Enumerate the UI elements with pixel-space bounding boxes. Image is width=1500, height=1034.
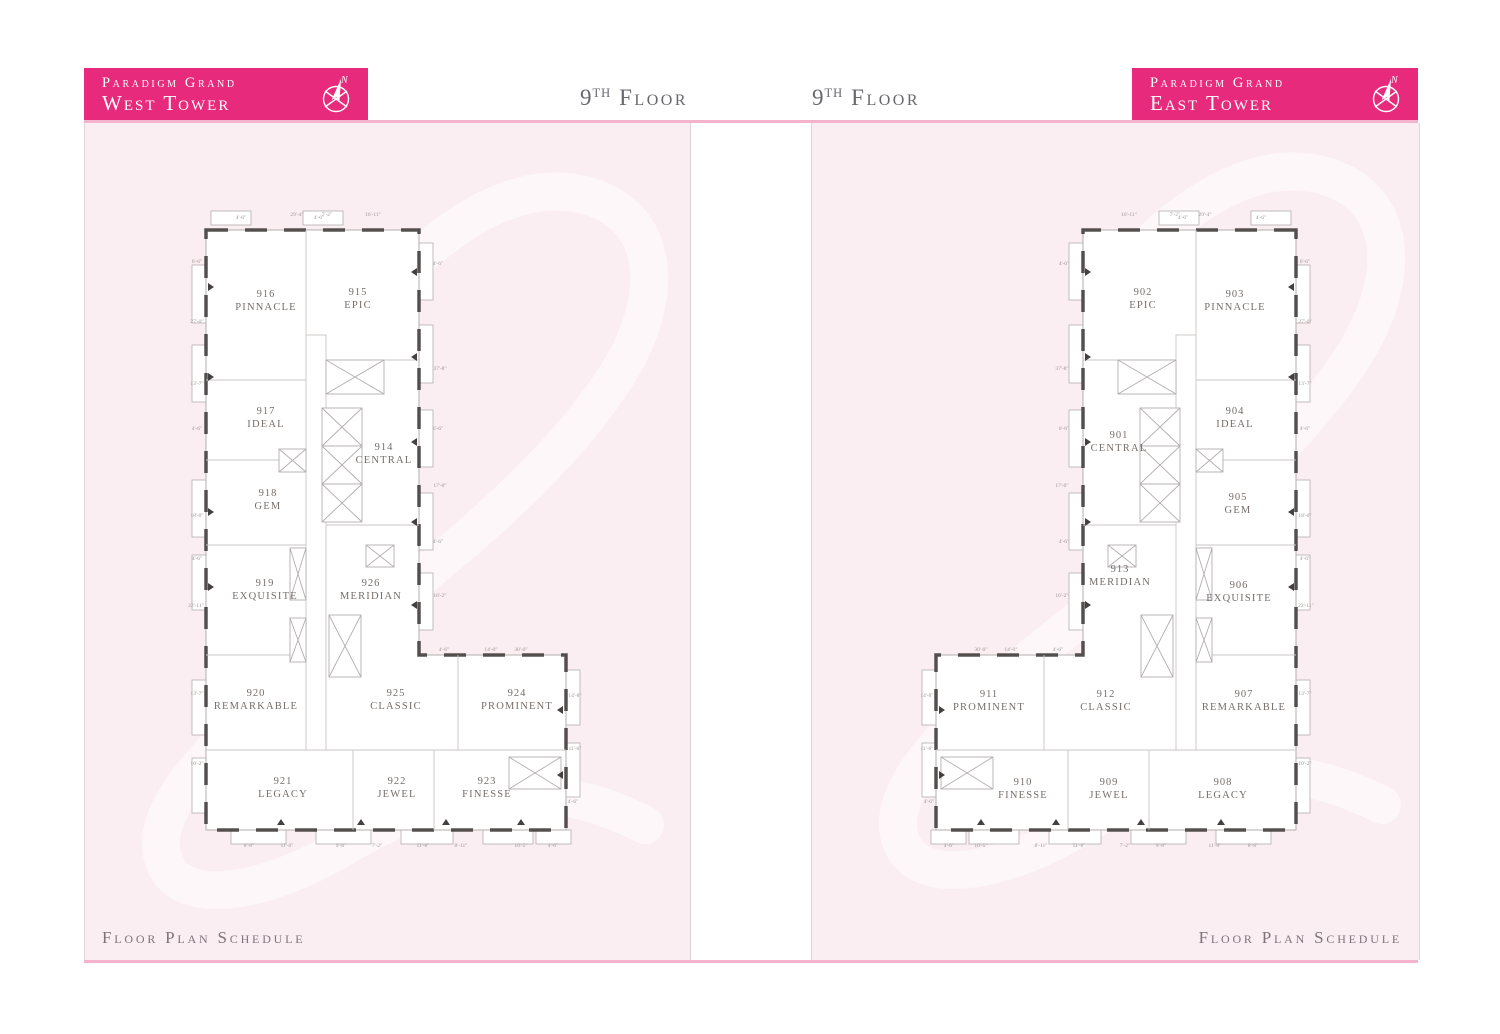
balcony	[192, 480, 206, 537]
balcony	[419, 410, 433, 467]
schedule-label-west: Floor Plan Schedule	[102, 928, 305, 948]
room-number: 924	[508, 688, 527, 699]
elevator-shaft	[941, 757, 993, 789]
balcony	[419, 493, 433, 550]
balcony	[1131, 830, 1186, 844]
unit-outline	[206, 230, 566, 830]
dimension-label: 8'-8"	[1248, 843, 1259, 849]
corridor	[306, 335, 326, 750]
room-name: GEM	[255, 501, 282, 512]
dimension-label: 9'-8"	[1156, 843, 1167, 849]
elevator-shaft	[1196, 618, 1212, 662]
floor-number: 9	[580, 85, 593, 110]
dimension-label: 4'-6"	[924, 799, 935, 805]
room-number: 907	[1235, 689, 1254, 700]
room-number: 914	[375, 442, 394, 453]
room-name: CLASSIC	[1080, 702, 1132, 713]
dimension-label: 10'-2"	[190, 761, 203, 767]
dimension-label: 13'-7"	[1298, 691, 1311, 697]
room-number: 905	[1229, 492, 1248, 503]
balcony	[483, 830, 533, 844]
compass-north-label: N	[340, 75, 349, 86]
room-name: CLASSIC	[370, 701, 422, 712]
elevator-shaft	[279, 449, 306, 472]
dimension-label: 4'-6"	[568, 799, 579, 805]
dimension-label: 9'-8"	[336, 843, 347, 849]
room-number: 906	[1230, 580, 1249, 591]
room-name: REMARKABLE	[1202, 702, 1286, 713]
dimension-label: 13'-7"	[190, 691, 203, 697]
dimension-label: 27'-0"	[190, 319, 203, 325]
room-name: PROMINENT	[481, 701, 553, 712]
balcony	[1216, 830, 1271, 844]
balcony	[536, 830, 571, 844]
dimension-label: 8'-11"	[454, 843, 467, 849]
room-number: 919	[256, 578, 275, 589]
room-name: FINESSE	[998, 790, 1048, 801]
room-number: 904	[1226, 406, 1245, 417]
room-name: PROMINENT	[953, 702, 1025, 713]
dimension-label: 4'-6"	[1059, 261, 1070, 267]
dimension-label: 4'-6"	[1300, 556, 1311, 562]
balcony	[192, 555, 206, 610]
dimension-label: 4'-6"	[1053, 647, 1064, 653]
room-name: EPIC	[344, 300, 372, 311]
west-tower-banner: Paradigm Grand West Tower N	[84, 68, 368, 120]
compass-icon: N	[316, 73, 356, 117]
dimension-label: 37'-8"	[1055, 366, 1068, 372]
dimension-label: 18'-0"	[1298, 513, 1311, 519]
dimension-label: 4'-6"	[236, 215, 247, 221]
dimension-label: 4'-6"	[439, 647, 450, 653]
room-name: EXQUISITE	[232, 591, 298, 602]
dimension-label: 29'-4"	[290, 212, 303, 218]
room-number: 925	[387, 688, 406, 699]
balcony	[1296, 265, 1310, 323]
dimension-label: 17'-0"	[1055, 483, 1068, 489]
balcony	[1049, 830, 1101, 844]
dimension-label: 4'-6"	[192, 556, 203, 562]
compass-icon: N	[1366, 73, 1406, 117]
elevator-shaft	[1140, 484, 1180, 522]
dimension-label: 14'-0"	[1004, 647, 1017, 653]
balcony	[1296, 345, 1310, 402]
dimension-label: 6'-6"	[1300, 259, 1311, 265]
balcony	[931, 830, 966, 844]
dimension-label: 6'-6"	[433, 426, 444, 432]
balcony	[192, 680, 206, 735]
room-number: 910	[1014, 777, 1033, 788]
floor-ordinal: th	[825, 86, 844, 100]
elevator-shaft	[1118, 360, 1176, 394]
dimension-label: 4'-6"	[1300, 426, 1311, 432]
dimension-label: 4'-6"	[192, 426, 203, 432]
dimension-label: 6'-6"	[192, 259, 203, 265]
elevator-shaft	[322, 484, 362, 522]
dimension-label: 22'-11"	[1298, 603, 1314, 609]
balcony	[192, 345, 206, 402]
dimension-label: 4'-6"	[433, 539, 444, 545]
room-name: JEWEL	[1089, 790, 1128, 801]
floor-word: Floor	[619, 85, 688, 110]
room-name: PINNACLE	[1204, 302, 1266, 313]
west-floor-plan: 4'-6"29'-4"7'-2"16'-11"4'-6"6'-6"27'-0"1…	[166, 205, 606, 855]
room-name: CENTRAL	[356, 455, 413, 466]
room-name: LEGACY	[1198, 790, 1248, 801]
floor-ordinal: th	[592, 86, 611, 100]
dimension-label: 22'-11"	[188, 603, 204, 609]
dimension-label: 4'-6"	[1256, 215, 1267, 221]
dimension-label: 17'-0"	[433, 483, 446, 489]
dimension-label: 10'-5"	[514, 843, 527, 849]
dimension-label: 4'-6"	[433, 261, 444, 267]
dimension-label: 14'-8"	[920, 693, 933, 699]
dimension-label: 16'-2"	[1055, 593, 1068, 599]
room-name: IDEAL	[1216, 419, 1254, 430]
dimension-label: 7'-2"	[1120, 843, 1131, 849]
brochure-page: 4'-6"29'-4"7'-2"16'-11"4'-6"6'-6"27'-0"1…	[0, 0, 1500, 1034]
unit-outline	[936, 230, 1296, 830]
dimension-label: 37'-8"	[433, 366, 446, 372]
balcony	[192, 265, 206, 323]
dimension-label: 11'-8"	[1072, 843, 1085, 849]
elevator-shaft	[1140, 408, 1180, 446]
dimension-label: 30'-0"	[974, 647, 987, 653]
dimension-label: 7'-2"	[372, 843, 383, 849]
room-name: LEGACY	[258, 789, 308, 800]
elevator-shaft	[322, 408, 362, 446]
balcony	[419, 243, 433, 300]
floor-title-west: 9thFloor	[440, 85, 688, 111]
elevator-shaft	[1141, 615, 1173, 677]
elevator-shaft	[509, 757, 561, 789]
dimension-label: 4'-6"	[548, 843, 559, 849]
dimension-label: 11'-0"	[280, 843, 293, 849]
dimension-label: 4'-6"	[944, 843, 955, 849]
dimension-label: 16'-11"	[1121, 212, 1137, 218]
room-name: JEWEL	[377, 789, 416, 800]
room-number: 915	[349, 287, 368, 298]
dimension-label: 10'-2"	[1298, 761, 1311, 767]
room-name: EPIC	[1129, 300, 1157, 311]
room-name: FINESSE	[462, 789, 512, 800]
balcony	[1069, 243, 1083, 300]
east-tower-banner: Paradigm Grand East Tower N	[1132, 68, 1418, 120]
elevator-shaft	[1196, 449, 1223, 472]
room-number: 912	[1097, 689, 1116, 700]
balcony	[1296, 555, 1310, 610]
east-floor-plan: 4'-6"29'-4"7'-2"16'-11"4'-6"6'-6"27'-0"1…	[896, 205, 1336, 855]
divider-line-bottom	[84, 960, 1418, 963]
room-number: 909	[1100, 777, 1119, 788]
dimension-label: 14'-8"	[568, 693, 581, 699]
balcony	[1069, 410, 1083, 467]
balcony	[1296, 680, 1310, 735]
room-number: 901	[1110, 430, 1129, 441]
tower-title: West Tower	[102, 91, 230, 116]
room-name: MERIDIAN	[1089, 577, 1151, 588]
floor-title-east: 9thFloor	[812, 85, 1060, 111]
dimension-label: 30'-0"	[514, 647, 527, 653]
balcony	[969, 830, 1019, 844]
room-number: 913	[1111, 564, 1130, 575]
room-number: 908	[1214, 777, 1233, 788]
dimension-label: 8'-11"	[1034, 843, 1047, 849]
dimension-label: 27'-0"	[1298, 319, 1311, 325]
room-name: PINNACLE	[235, 302, 297, 313]
room-number: 902	[1134, 287, 1153, 298]
room-number: 920	[247, 688, 266, 699]
brand-title: Paradigm Grand	[102, 75, 237, 92]
room-number: 921	[274, 776, 293, 787]
dimension-label: 10'-5"	[974, 843, 987, 849]
floor-number: 9	[812, 85, 825, 110]
dimension-label: 11'-0"	[1208, 843, 1221, 849]
room-name: IDEAL	[247, 419, 285, 430]
balcony	[231, 830, 286, 844]
room-number: 911	[980, 689, 998, 700]
brand-title: Paradigm Grand	[1150, 75, 1285, 92]
balcony	[316, 830, 371, 844]
room-number: 918	[259, 488, 278, 499]
room-name: GEM	[1225, 505, 1252, 516]
schedule-label-east: Floor Plan Schedule	[1199, 928, 1402, 948]
dimension-label: 13'-7"	[1298, 381, 1311, 387]
elevator-shaft	[326, 360, 384, 394]
room-number: 926	[362, 578, 381, 589]
dimension-label: 14'-0"	[484, 647, 497, 653]
dimension-label: 4'-6"	[314, 215, 325, 221]
balcony	[419, 573, 433, 630]
divider-line-top	[84, 120, 1418, 123]
west-panel: 4'-6"29'-4"7'-2"16'-11"4'-6"6'-6"27'-0"1…	[84, 123, 691, 960]
dimension-label: 6'-6"	[1059, 426, 1070, 432]
floor-word: Floor	[851, 85, 920, 110]
room-number: 916	[257, 289, 276, 300]
room-number: 903	[1226, 289, 1245, 300]
east-panel: 4'-6"29'-4"7'-2"16'-11"4'-6"6'-6"27'-0"1…	[811, 123, 1420, 960]
room-name: CENTRAL	[1091, 443, 1148, 454]
tower-title: East Tower	[1150, 91, 1273, 116]
elevator-shaft	[366, 545, 394, 567]
room-number: 917	[257, 406, 276, 417]
corridor	[1176, 335, 1196, 750]
balcony	[1069, 573, 1083, 630]
dimension-label: 11'-6"	[920, 746, 933, 752]
balcony	[419, 325, 433, 383]
room-number: 922	[388, 776, 407, 787]
elevator-shaft	[329, 615, 361, 677]
dimension-label: 18'-0"	[190, 513, 203, 519]
dimension-label: 8'-8"	[244, 843, 255, 849]
compass-north-label: N	[1390, 75, 1399, 86]
room-name: EXQUISITE	[1206, 593, 1272, 604]
dimension-label: 4'-6"	[1059, 539, 1070, 545]
room-name: REMARKABLE	[214, 701, 298, 712]
room-number: 923	[478, 776, 497, 787]
balcony	[1069, 493, 1083, 550]
balcony	[401, 830, 453, 844]
dimension-label: 11'-6"	[568, 746, 581, 752]
dimension-label: 16'-11"	[365, 212, 381, 218]
dimension-label: 16'-2"	[433, 593, 446, 599]
balcony	[1069, 325, 1083, 383]
dimension-label: 29'-4"	[1198, 212, 1211, 218]
dimension-label: 4'-6"	[1178, 215, 1189, 221]
dimension-label: 13'-7"	[190, 381, 203, 387]
room-name: MERIDIAN	[340, 591, 402, 602]
elevator-shaft	[290, 618, 306, 662]
balcony	[1296, 480, 1310, 537]
dimension-label: 11'-8"	[416, 843, 429, 849]
